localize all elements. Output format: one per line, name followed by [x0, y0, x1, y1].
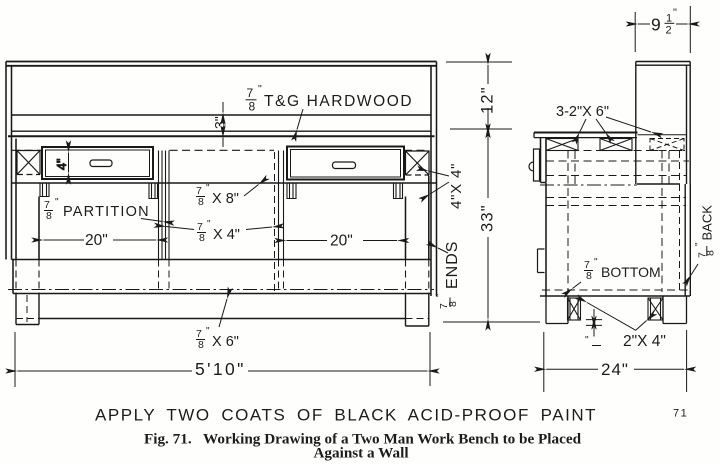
- svg-text:24": 24": [601, 360, 629, 379]
- svg-text:5'10": 5'10": [195, 359, 246, 379]
- svg-text:7: 7: [247, 86, 254, 100]
- svg-text:X 4": X 4": [213, 227, 240, 243]
- svg-text:20": 20": [85, 232, 108, 249]
- svg-text:2"X 4": 2"X 4": [623, 333, 666, 350]
- svg-text:": ": [694, 242, 705, 246]
- svg-text:8: 8: [198, 339, 204, 351]
- svg-text:": ": [207, 219, 211, 230]
- svg-text:BACK: BACK: [700, 205, 715, 241]
- svg-text:": ": [206, 183, 210, 194]
- svg-text:": ": [435, 293, 446, 297]
- svg-text:BOTTOM: BOTTOM: [601, 264, 661, 280]
- svg-text:8: 8: [199, 232, 205, 244]
- svg-text:": ": [258, 83, 262, 95]
- svg-text:4"X 4": 4"X 4": [448, 163, 465, 209]
- svg-text:": ": [594, 257, 598, 268]
- svg-text:T&G HARDWOOD: T&G HARDWOOD: [264, 93, 413, 110]
- svg-text:PARTITION: PARTITION: [63, 204, 150, 220]
- svg-text:": ": [673, 7, 677, 19]
- svg-text:1: 1: [666, 13, 672, 25]
- svg-text:20": 20": [330, 233, 353, 250]
- svg-text:71: 71: [673, 408, 688, 420]
- svg-text:3": 3": [212, 116, 228, 129]
- svg-text:": ": [55, 197, 59, 208]
- svg-text:8: 8: [46, 210, 52, 222]
- svg-text:": ": [585, 335, 589, 346]
- svg-text:33": 33": [479, 204, 497, 232]
- svg-text:": ": [206, 326, 210, 337]
- svg-text:4": 4": [55, 159, 69, 170]
- svg-text:X 8": X 8": [212, 191, 239, 207]
- svg-text:8: 8: [249, 100, 256, 114]
- svg-text:ENDS: ENDS: [444, 241, 461, 289]
- svg-text:X 6": X 6": [212, 334, 239, 350]
- svg-text:3-2"X 6": 3-2"X 6": [556, 104, 609, 120]
- svg-text:8: 8: [447, 301, 459, 307]
- svg-text:8: 8: [198, 196, 204, 208]
- svg-text:12": 12": [479, 86, 497, 114]
- svg-text:2: 2: [666, 25, 672, 37]
- svg-text:8: 8: [586, 270, 592, 282]
- svg-text:Against a Wall: Against a Wall: [313, 445, 408, 462]
- svg-text:9: 9: [651, 15, 661, 35]
- svg-text:APPLY TWO COATS OF BLACK ACID-: APPLY TWO COATS OF BLACK ACID-PROOF PAIN…: [95, 406, 597, 425]
